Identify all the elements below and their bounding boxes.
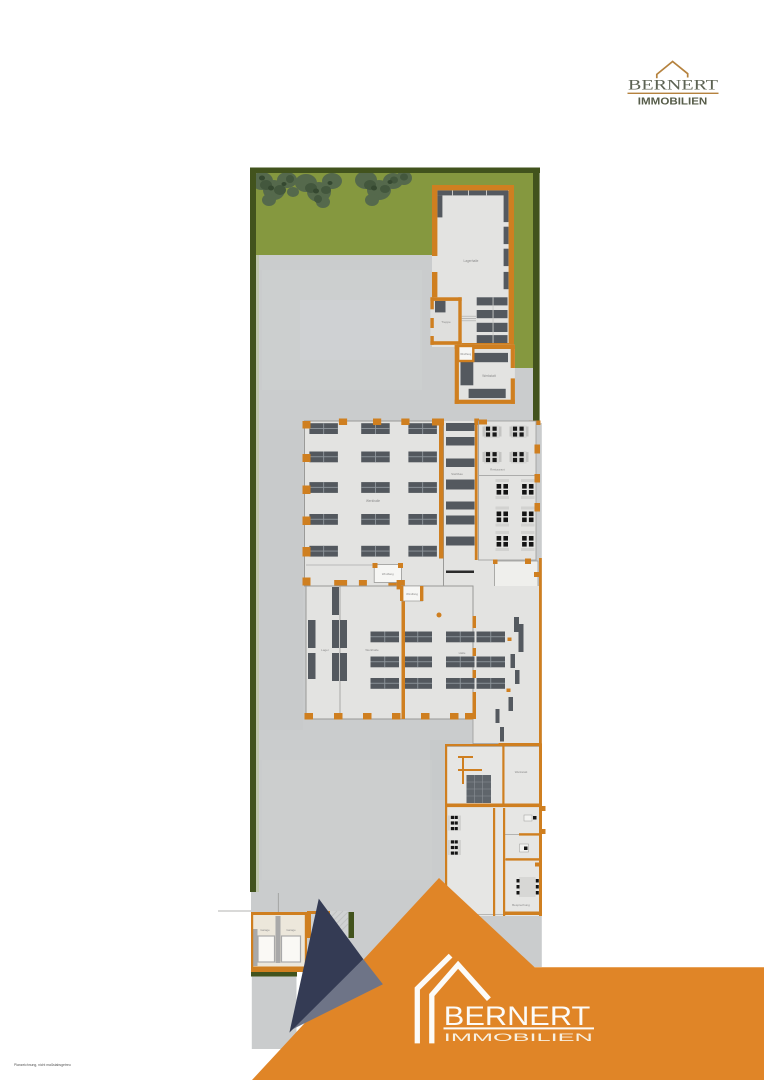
svg-text:Restaurant: Restaurant: [490, 468, 505, 472]
svg-text:Lagerhalle: Lagerhalle: [464, 259, 479, 263]
svg-text:Garage: Garage: [286, 928, 296, 932]
svg-text:Windfang: Windfang: [382, 572, 394, 576]
svg-text:Lager: Lager: [321, 648, 329, 652]
svg-text:Windfang: Windfang: [406, 592, 418, 596]
svg-text:Besprechung: Besprechung: [512, 903, 530, 907]
svg-text:Garage: Garage: [260, 928, 270, 932]
svg-text:Werkhalle: Werkhalle: [365, 648, 379, 652]
svg-text:BERNERT: BERNERT: [628, 78, 718, 94]
svg-text:Stahlbau: Stahlbau: [451, 472, 463, 476]
svg-text:Werkstatt: Werkstatt: [515, 770, 528, 774]
svg-text:Halle: Halle: [459, 651, 466, 655]
svg-text:Treppe: Treppe: [441, 320, 451, 324]
svg-text:BERNERT: BERNERT: [444, 1001, 591, 1031]
svg-text:Werkhalle: Werkhalle: [366, 499, 380, 503]
svg-text:IMMOBILIEN: IMMOBILIEN: [638, 95, 708, 107]
svg-text:IMMOBILIEN: IMMOBILIEN: [444, 1032, 593, 1044]
svg-text:Werkstatt: Werkstatt: [482, 374, 496, 378]
svg-text:Windfang: Windfang: [460, 352, 472, 356]
svg-text:Planzeichnung, nicht maßstabsg: Planzeichnung, nicht maßstabsgetreu: [14, 1063, 71, 1067]
